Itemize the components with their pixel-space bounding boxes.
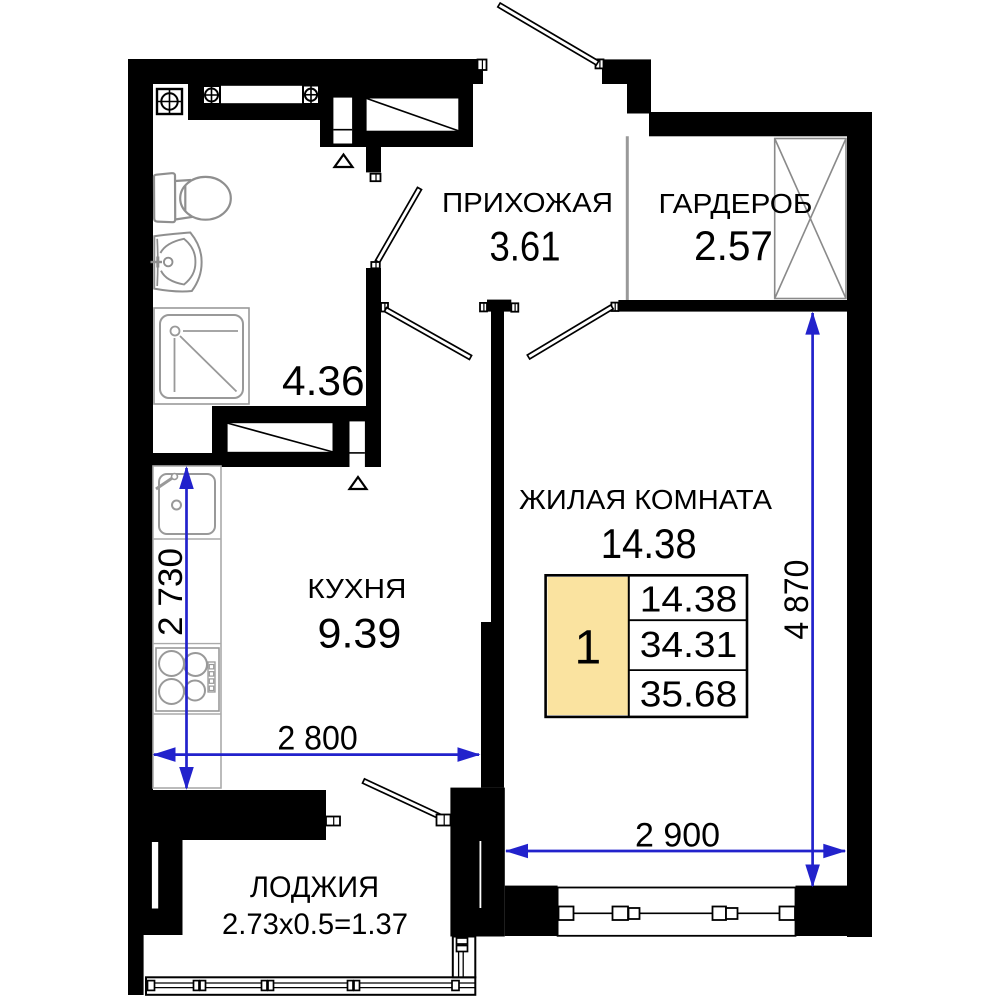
svg-text:КУХНЯ: КУХНЯ [307,573,406,604]
svg-text:1: 1 [574,622,601,675]
svg-text:3.61: 3.61 [490,223,561,270]
svg-text:ЖИЛАЯ КОМНАТА: ЖИЛАЯ КОМНАТА [519,484,772,515]
svg-text:14.38: 14.38 [601,520,697,567]
svg-text:35.68: 35.68 [640,674,738,715]
svg-text:2 900: 2 900 [635,817,720,855]
svg-text:ЛОДЖИЯ: ЛОДЖИЯ [250,871,379,904]
svg-text:2.57: 2.57 [694,222,773,269]
svg-text:14.38: 14.38 [640,579,738,620]
svg-text:2 730: 2 730 [152,548,190,636]
svg-text:9.39: 9.39 [318,610,402,657]
svg-text:4.36: 4.36 [282,357,365,404]
svg-text:2.73х0.5=1.37: 2.73х0.5=1.37 [222,908,408,941]
svg-text:34.31: 34.31 [640,624,738,665]
svg-text:ПРИХОЖАЯ: ПРИХОЖАЯ [442,187,613,218]
svg-text:2 800: 2 800 [277,720,357,758]
svg-text:4 870: 4 870 [778,560,816,640]
svg-text:ГАРДЕРОБ: ГАРДЕРОБ [659,188,813,219]
